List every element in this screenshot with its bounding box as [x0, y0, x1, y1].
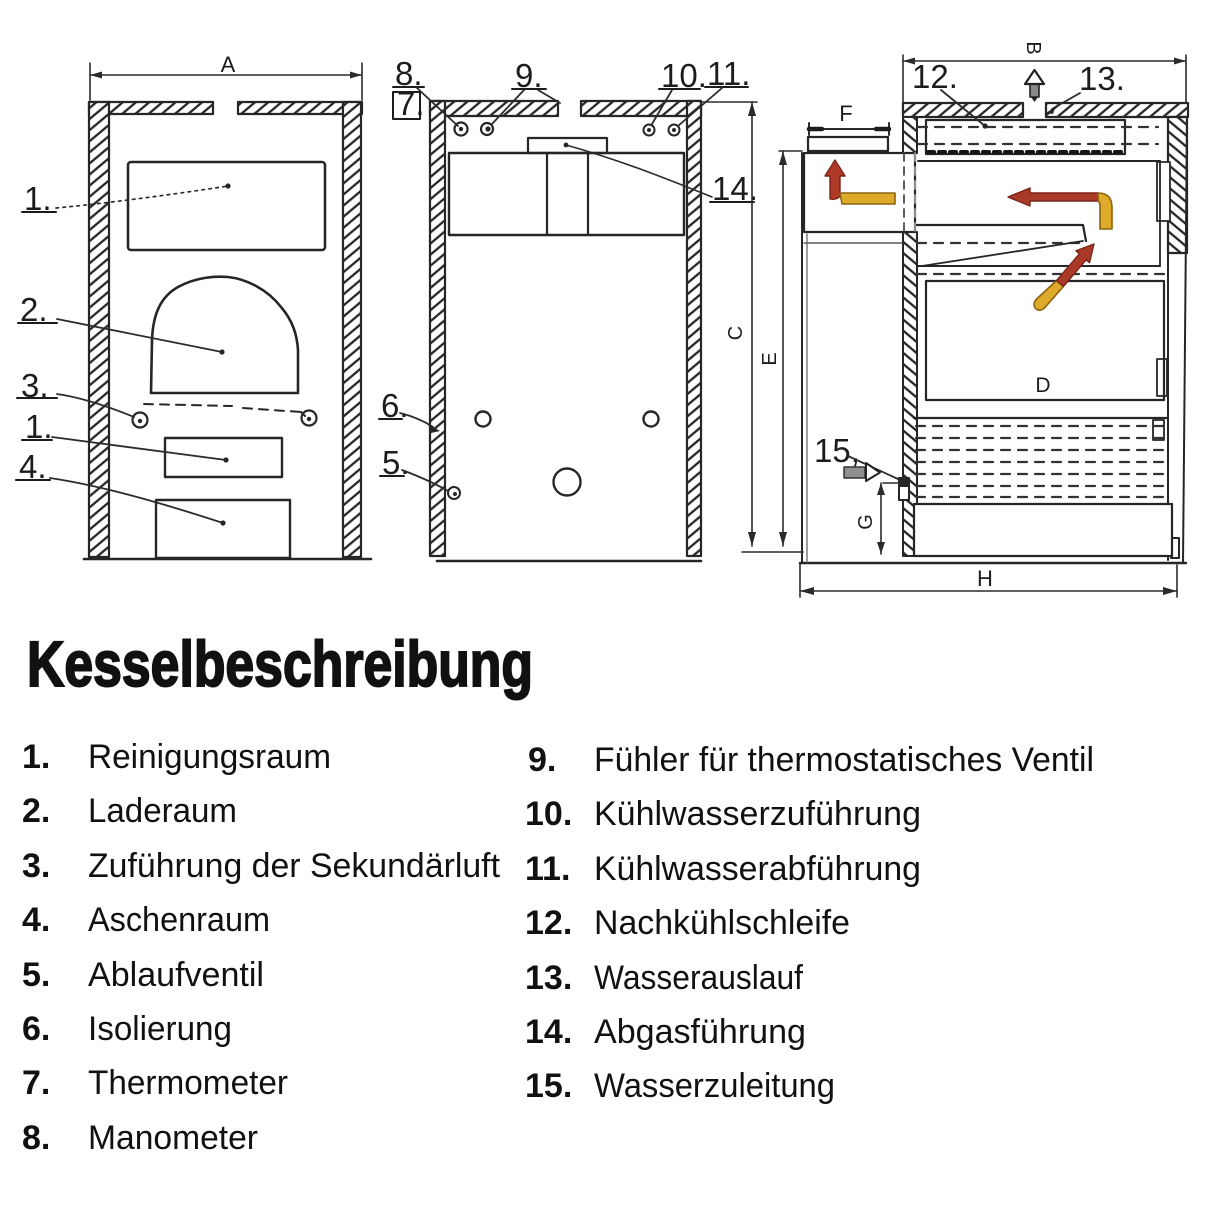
svg-text:13.: 13.: [525, 959, 572, 997]
svg-text:7.: 7.: [22, 1064, 50, 1102]
svg-text:13.: 13.: [1079, 60, 1125, 97]
svg-text:D: D: [1035, 374, 1050, 397]
svg-text:Fühler für thermostatisches Ve: Fühler für thermostatisches Ventil: [594, 741, 1094, 779]
svg-text:15,: 15,: [814, 432, 860, 469]
svg-text:Ablaufventil: Ablaufventil: [88, 956, 264, 994]
svg-text:15.: 15.: [525, 1067, 572, 1105]
svg-text:A: A: [221, 52, 236, 77]
svg-text:Laderaum: Laderaum: [88, 792, 237, 830]
svg-text:11.: 11.: [525, 850, 570, 888]
svg-text:H: H: [977, 566, 993, 591]
svg-text:Abgasführung: Abgasführung: [594, 1013, 806, 1051]
svg-text:E: E: [759, 352, 781, 365]
svg-text:9.: 9.: [528, 741, 556, 779]
svg-text:Kühlwasserzuführung: Kühlwasserzuführung: [594, 795, 921, 833]
svg-text:4.: 4.: [22, 901, 50, 939]
svg-text:Isolierung: Isolierung: [88, 1010, 232, 1048]
svg-text:Wasserauslauf: Wasserauslauf: [594, 959, 804, 997]
svg-text:Wasserzuleitung: Wasserzuleitung: [594, 1067, 835, 1105]
svg-text:Zuführung der Sekundärluft: Zuführung der Sekundärluft: [88, 847, 501, 885]
svg-text:6.: 6.: [22, 1010, 50, 1048]
svg-text:2.: 2.: [22, 792, 50, 830]
svg-text:14.: 14.: [525, 1013, 572, 1051]
svg-text:10.: 10.: [525, 795, 572, 833]
svg-text:12.: 12.: [912, 58, 958, 95]
svg-text:G: G: [855, 514, 877, 530]
svg-text:1.: 1.: [22, 738, 50, 776]
svg-text:Kühlwasserabführung: Kühlwasserabführung: [594, 850, 921, 888]
svg-text:Reinigungsraum: Reinigungsraum: [88, 738, 331, 776]
svg-text:F: F: [839, 101, 852, 126]
svg-text:3.: 3.: [22, 847, 50, 885]
svg-text:Thermometer: Thermometer: [88, 1064, 288, 1102]
svg-text:Aschenraum: Aschenraum: [88, 901, 270, 939]
svg-text:8.: 8.: [22, 1119, 50, 1157]
svg-text:Kesselbeschreibung: Kesselbeschreibung: [27, 628, 533, 700]
svg-text:B: B: [1022, 41, 1044, 54]
svg-text:5.: 5.: [22, 956, 50, 994]
svg-text:12.: 12.: [525, 904, 572, 942]
svg-text:Nachkühlschleife: Nachkühlschleife: [594, 904, 850, 942]
svg-text:Manometer: Manometer: [88, 1119, 258, 1157]
svg-text:C: C: [725, 326, 747, 340]
